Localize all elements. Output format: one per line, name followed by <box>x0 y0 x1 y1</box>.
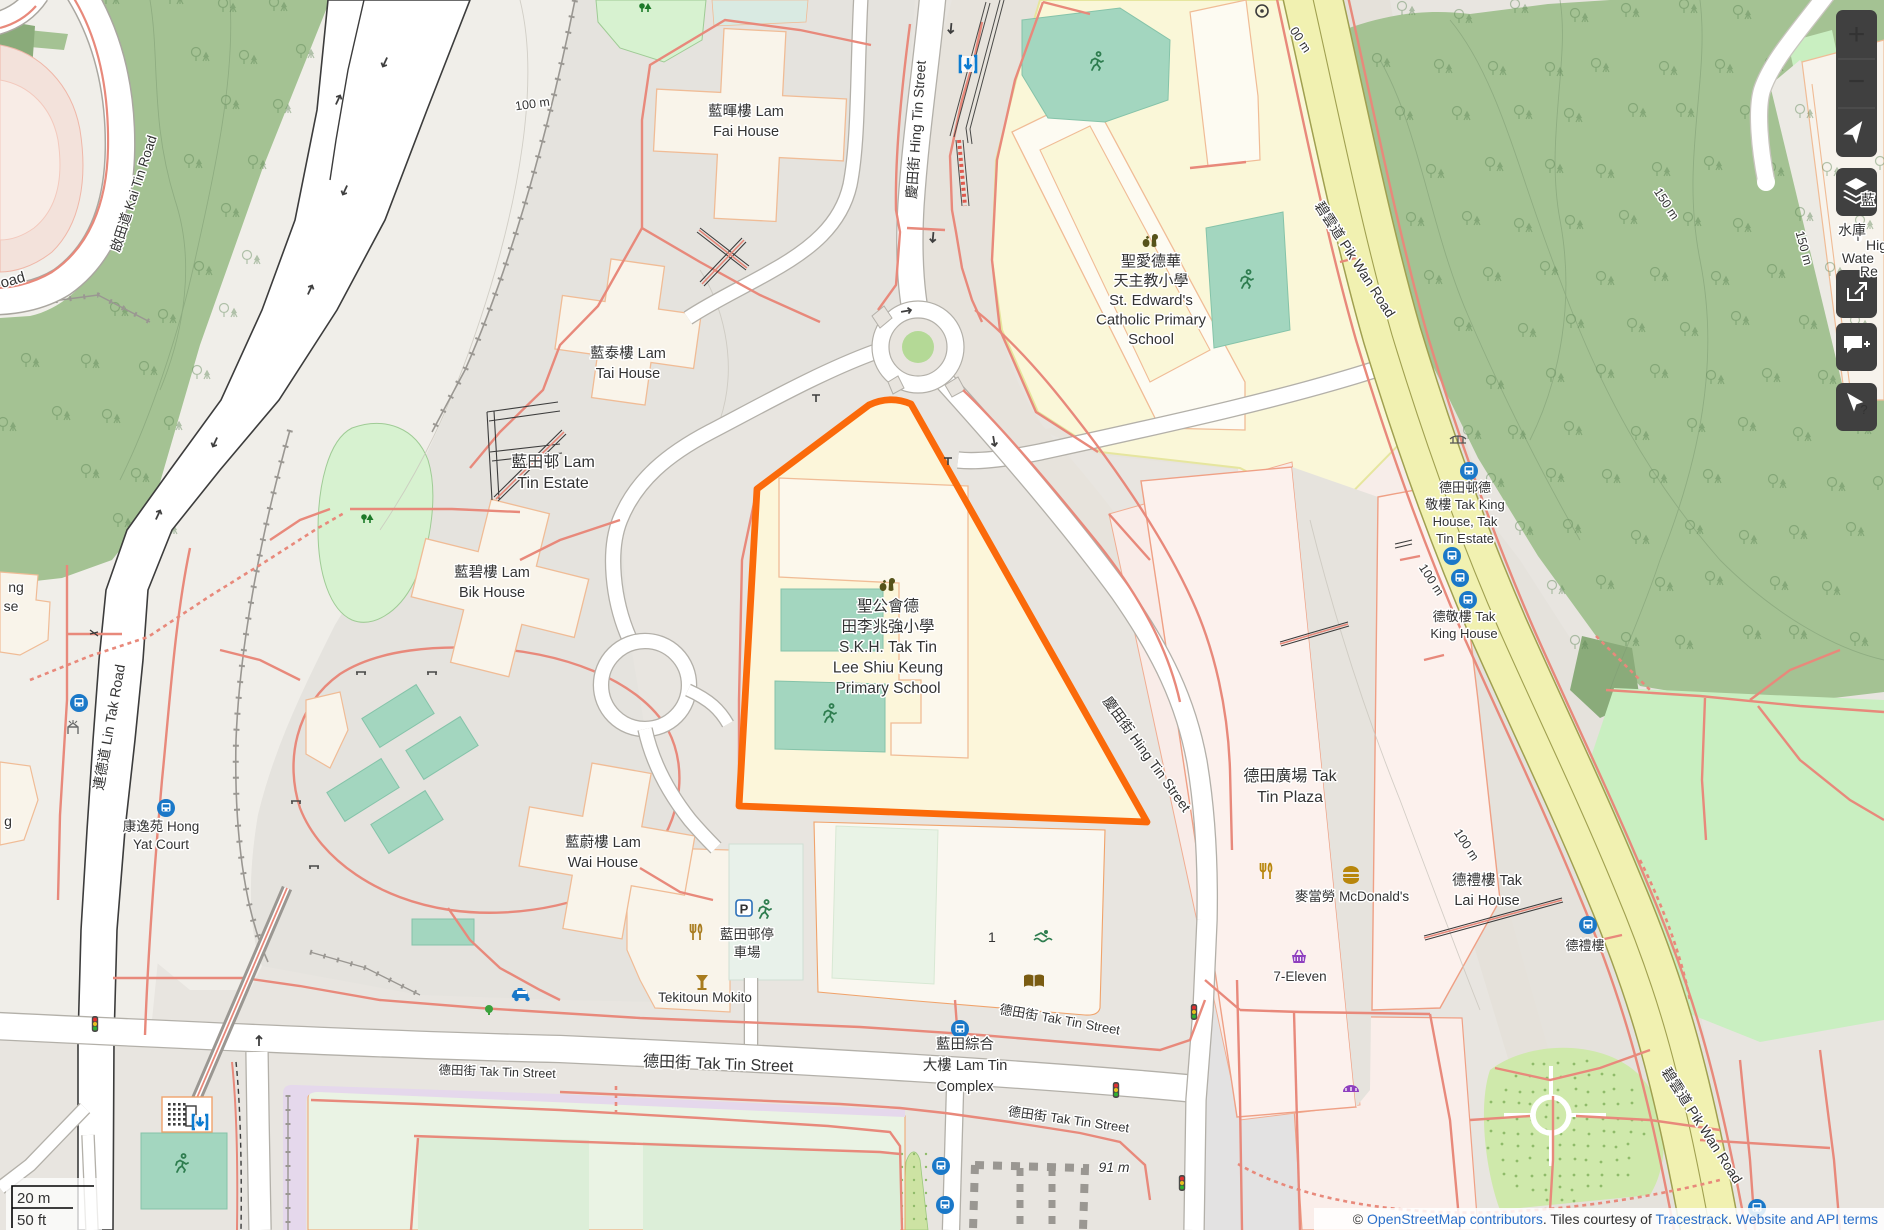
svg-text:麥當勞 McDonald's: 麥當勞 McDonald's <box>1295 889 1410 904</box>
svg-text:House, Tak: House, Tak <box>1433 514 1498 529</box>
svg-text:藍泰樓 Lam: 藍泰樓 Lam <box>590 345 666 362</box>
svg-text:Tai House: Tai House <box>596 366 660 382</box>
svg-text:91 m: 91 m <box>1098 1159 1129 1175</box>
svg-text:德田廣場 Tak: 德田廣場 Tak <box>1243 767 1337 785</box>
svg-text:se: se <box>4 598 19 614</box>
svg-text:敬樓 Tak King: 敬樓 Tak King <box>1425 497 1504 512</box>
svg-text:Catholic Primary: Catholic Primary <box>1096 312 1207 329</box>
svg-text:Re: Re <box>1860 263 1878 279</box>
svg-text:Tin Plaza: Tin Plaza <box>1257 789 1323 806</box>
svg-text:50 ft: 50 ft <box>17 1212 47 1229</box>
svg-text:S.K.H. Tak Tin: S.K.H. Tak Tin <box>839 639 937 656</box>
svg-text:聖愛德華: 聖愛德華 <box>1121 252 1181 270</box>
svg-text:藍蔚樓 Lam: 藍蔚樓 Lam <box>565 834 641 851</box>
svg-text:20 m: 20 m <box>17 1190 50 1207</box>
svg-text:Lai House: Lai House <box>1454 893 1519 909</box>
svg-text:康逸苑 Hong: 康逸苑 Hong <box>123 818 200 834</box>
svg-text:Bik House: Bik House <box>459 585 525 601</box>
svg-text:藍: 藍 <box>1861 192 1875 208</box>
svg-text:聖公會德: 聖公會德 <box>857 597 919 615</box>
svg-text:School: School <box>1128 331 1174 348</box>
svg-text:7-Eleven: 7-Eleven <box>1273 969 1326 984</box>
svg-text:Lee Shiu Keung: Lee Shiu Keung <box>833 660 943 677</box>
svg-text:Complex: Complex <box>936 1079 994 1095</box>
svg-text:Wai House: Wai House <box>568 855 638 871</box>
svg-text:© OpenStreetMap contributors.: © OpenStreetMap contributors. Tiles cour… <box>1353 1211 1878 1227</box>
svg-text:Primary School: Primary School <box>835 680 940 697</box>
svg-text:Fai House: Fai House <box>713 124 779 140</box>
svg-text:Tin Estate: Tin Estate <box>517 475 589 492</box>
svg-text:ng: ng <box>8 579 24 595</box>
svg-text:藍田邨停: 藍田邨停 <box>720 926 774 942</box>
svg-text:車場: 車場 <box>734 945 761 960</box>
svg-text:Tekitoun Mokito: Tekitoun Mokito <box>658 990 752 1005</box>
svg-text:藍暉樓 Lam: 藍暉樓 Lam <box>708 103 784 120</box>
svg-text:德禮樓 Tak: 德禮樓 Tak <box>1452 872 1523 889</box>
svg-text:Tin Estate: Tin Estate <box>1436 531 1494 546</box>
svg-text:德敬樓 Tak: 德敬樓 Tak <box>1433 609 1496 624</box>
svg-text:天主教小學: 天主教小學 <box>1113 272 1188 290</box>
svg-text:?: ? <box>1860 402 1867 417</box>
svg-text:田李兆強小學: 田李兆強小學 <box>841 617 934 636</box>
svg-text:藍田邨 Lam: 藍田邨 Lam <box>511 453 595 471</box>
svg-text:P: P <box>740 902 749 917</box>
svg-text:藍田綜合: 藍田綜合 <box>936 1036 994 1053</box>
svg-text:St. Edward's: St. Edward's <box>1109 292 1193 309</box>
svg-text:Yat Court: Yat Court <box>133 837 189 852</box>
svg-text:水庫: 水庫 <box>1838 222 1866 238</box>
svg-text:1: 1 <box>988 929 996 945</box>
svg-text:g: g <box>4 813 12 829</box>
svg-text:大樓 Lam Tin: 大樓 Lam Tin <box>923 1057 1008 1074</box>
svg-text:德田邨德: 德田邨德 <box>1439 480 1491 495</box>
svg-text:藍碧樓 Lam: 藍碧樓 Lam <box>454 564 530 581</box>
svg-text:德禮樓: 德禮樓 <box>1565 938 1604 953</box>
svg-text:King House: King House <box>1430 626 1497 641</box>
svg-text:+: + <box>1848 18 1866 51</box>
svg-text:−: − <box>1848 65 1866 98</box>
